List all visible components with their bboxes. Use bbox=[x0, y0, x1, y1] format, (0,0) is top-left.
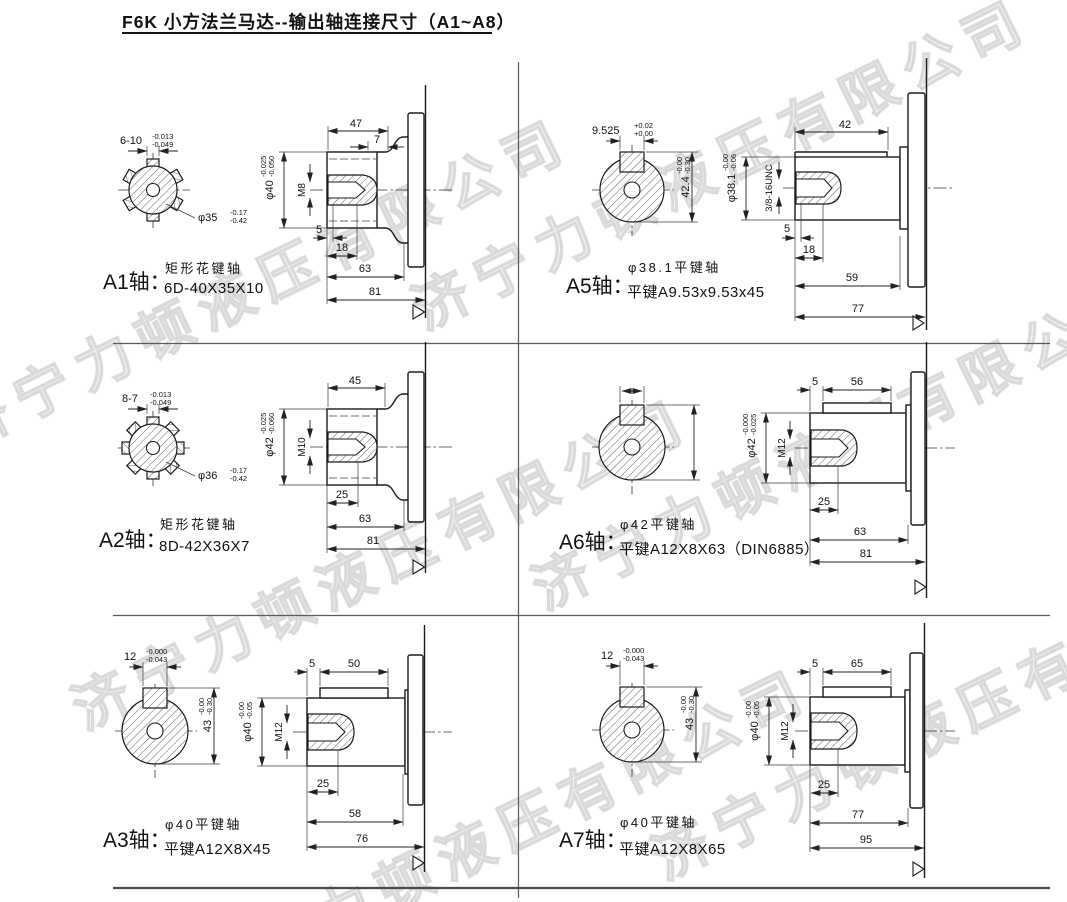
a6-end-view bbox=[592, 386, 700, 494]
a1-end-view: 6-10 -0.013 -0.049 φ35 -0.17 -0.42 bbox=[118, 132, 247, 228]
a2-spline-width-dim: 8-7 bbox=[122, 393, 138, 405]
a7-dim-95: 95 bbox=[860, 834, 872, 846]
svg-text:42.4: 42.4 bbox=[680, 176, 692, 197]
a2-shaft-dia-dim: φ42 -0.025 -0.060 bbox=[259, 413, 276, 457]
svg-text:43: 43 bbox=[202, 720, 214, 732]
svg-text:-0.05: -0.05 bbox=[752, 701, 761, 718]
a1-dim-18: 18 bbox=[336, 242, 348, 254]
svg-text:-0.050: -0.050 bbox=[267, 156, 276, 177]
a6-dim-25: 25 bbox=[818, 496, 830, 508]
a3-key-width-tol-l: -0.043 bbox=[146, 655, 167, 664]
a7-key-height-dim: 43 -0.00 -0.30 bbox=[679, 696, 696, 730]
svg-text:φ42: φ42 bbox=[746, 438, 758, 457]
a7-shaft-dia-dim: φ40 -0.00 -0.05 bbox=[744, 701, 761, 741]
a7-dim-65: 65 bbox=[851, 658, 863, 670]
a5-key-width-dim: 9.525 bbox=[592, 125, 620, 137]
a7-key-width-dim: 12 bbox=[601, 650, 613, 662]
a1-spline-width-dim: 6-10 bbox=[120, 135, 142, 147]
a5-dim-5: 5 bbox=[784, 223, 790, 235]
a7-shaft-desc1: φ40平键轴 bbox=[620, 812, 697, 831]
a2-shaft-desc2: 8D-42X36X7 bbox=[159, 538, 250, 555]
a3-thread-dim: M12 bbox=[274, 722, 285, 742]
a3-key-width-dim: 12 bbox=[124, 651, 136, 663]
a2-len45-dim: 45 bbox=[349, 375, 361, 387]
a1-len47-dim: 47 bbox=[350, 118, 362, 130]
a3-end-view: 12 -0.000 -0.043 43 -0.00 -0.30 bbox=[115, 647, 220, 778]
a1-shaft-label: A1轴： bbox=[103, 266, 171, 296]
svg-text:43: 43 bbox=[684, 718, 696, 730]
svg-text:M10: M10 bbox=[297, 437, 308, 457]
first-angle-projection-icon bbox=[413, 560, 425, 574]
a2-dim-81: 81 bbox=[367, 535, 379, 547]
a5-key-width-tol-l: +0.00 bbox=[634, 129, 653, 138]
svg-text:M12: M12 bbox=[777, 438, 788, 458]
svg-text:M8: M8 bbox=[297, 183, 308, 197]
a7-dim-25: 25 bbox=[818, 779, 830, 791]
a6-dim-56: 56 bbox=[851, 376, 863, 388]
a1-side-view: 47 7 φ40 -0.025 -0.050 M8 bbox=[259, 85, 452, 319]
a1-shaft-desc2: 6D-40X35X10 bbox=[164, 280, 264, 297]
a5-end-view: 9.525 +0.02 +0.00 42.4 -0.00 -0.30 bbox=[592, 121, 698, 236]
a5-shaft-dia-dim: φ38.1 -0.00 -0.06 bbox=[721, 154, 738, 202]
a3-dim-50: 50 bbox=[348, 658, 360, 670]
a5-shaft-label: A5轴： bbox=[566, 270, 634, 300]
a1-dim-63: 63 bbox=[359, 263, 371, 275]
a6-thread-dim: M12 bbox=[777, 438, 788, 458]
a6-shaft-desc2: 平键A12X8X63（DIN6885） bbox=[619, 538, 819, 559]
svg-text:M12: M12 bbox=[274, 722, 285, 742]
drawing-sheet: 济宁力顿液压有限公司 济宁力顿液压有限公司 济宁力顿液压有限公司 济宁力顿液压有… bbox=[0, 0, 1067, 902]
a7-shaft-label: A7轴： bbox=[559, 824, 627, 854]
a3-shaft-label: A3轴： bbox=[103, 824, 171, 854]
a1-dim-81: 81 bbox=[369, 286, 381, 298]
a6-dim-63: 63 bbox=[854, 526, 866, 538]
technical-drawing: 6-10 -0.013 -0.049 φ35 -0.17 -0.42 bbox=[0, 0, 1067, 902]
svg-text:-0.06: -0.06 bbox=[729, 154, 738, 171]
a1-len7-dim: 7 bbox=[374, 134, 380, 146]
a3-dim-58: 58 bbox=[349, 808, 361, 820]
svg-text:-0.30: -0.30 bbox=[683, 157, 692, 174]
a1-thread-dim: M8 bbox=[297, 183, 308, 197]
a7-dim-5: 5 bbox=[812, 658, 818, 670]
svg-text:-0.060: -0.060 bbox=[267, 413, 276, 434]
a5-dim-59: 59 bbox=[846, 272, 858, 284]
a1-spline-dia-tol-l: -0.42 bbox=[230, 216, 247, 225]
a5-dim-77: 77 bbox=[852, 303, 864, 315]
a6-side-view: 5 56 φ42 -0.000 -0.025 M12 bbox=[741, 342, 955, 598]
svg-text:φ42: φ42 bbox=[264, 437, 276, 456]
svg-text:-0.30: -0.30 bbox=[205, 698, 214, 715]
a1-dim-5: 5 bbox=[316, 224, 322, 236]
a1-shaft-desc1: 矩形花键轴 bbox=[165, 258, 243, 277]
svg-text:φ38.1: φ38.1 bbox=[726, 174, 738, 203]
a3-key-height-dim: 43 -0.00 -0.30 bbox=[197, 698, 214, 732]
a6-shaft-desc1: φ42平键轴 bbox=[620, 514, 697, 533]
a7-shaft-desc2: 平键A12X8X65 bbox=[619, 838, 726, 859]
a3-shaft-dia-dim: φ40 -0.00 -0.05 bbox=[237, 702, 254, 742]
a3-side-view: 5 50 φ40 -0.00 -0.05 M12 bbox=[237, 625, 452, 872]
a7-key bbox=[620, 687, 644, 707]
a5-dim-18: 18 bbox=[803, 244, 815, 256]
svg-text:φ40: φ40 bbox=[749, 721, 761, 740]
a7-end-view: 12 -0.000 -0.043 43 -0.00 -0.30 bbox=[592, 646, 702, 777]
a7-thread-dim: M12 bbox=[780, 721, 791, 741]
svg-text:-0.30: -0.30 bbox=[687, 696, 696, 713]
svg-text:3/8-16UNC: 3/8-16UNC bbox=[764, 164, 775, 212]
svg-text:φ40: φ40 bbox=[264, 180, 276, 199]
a5-thread-dim: 3/8-16UNC bbox=[764, 164, 775, 212]
a7-side-view: 5 65 φ40 -0.00 -0.05 M12 bbox=[744, 623, 955, 878]
a7-dim-77: 77 bbox=[852, 809, 864, 821]
a5-key-height-dim: 42.4 -0.00 -0.30 bbox=[675, 157, 692, 198]
svg-text:-0.05: -0.05 bbox=[245, 702, 254, 719]
a3-shaft-desc1: φ40平键轴 bbox=[165, 814, 242, 833]
a3-dim-5: 5 bbox=[309, 658, 315, 670]
a3-key bbox=[143, 688, 167, 708]
a6-dim-5: 5 bbox=[812, 376, 818, 388]
a2-end-view: 8-7 -0.013 -0.049 φ36 -0.17 -0.42 bbox=[118, 390, 247, 486]
a6-dim-81: 81 bbox=[860, 548, 872, 560]
svg-text:φ40: φ40 bbox=[242, 722, 254, 741]
a3-keyway bbox=[320, 688, 388, 698]
a6-keyway bbox=[823, 403, 891, 413]
a2-side-view: 45 φ42 -0.025 -0.060 M10 25 bbox=[259, 342, 452, 574]
a2-spline-width-tol-l: -0.049 bbox=[150, 398, 171, 407]
a1-spline-dia-dim: φ35 bbox=[198, 212, 217, 224]
a3-dim-25: 25 bbox=[317, 778, 329, 790]
first-angle-projection-icon bbox=[413, 856, 424, 870]
svg-text:M12: M12 bbox=[780, 721, 791, 741]
first-angle-projection-icon bbox=[913, 316, 924, 330]
a5-len42-dim: 42 bbox=[839, 119, 851, 131]
first-angle-projection-icon bbox=[915, 580, 926, 594]
a2-shaft-label: A2轴： bbox=[99, 524, 167, 554]
a5-shaft-desc1: φ38.1平键轴 bbox=[628, 257, 721, 276]
a1-spline-width-tol-l: -0.049 bbox=[152, 140, 173, 149]
svg-text:-0.025: -0.025 bbox=[749, 414, 758, 435]
a3-dim-76: 76 bbox=[356, 833, 368, 845]
a6-panel: 5 56 φ42 -0.000 -0.025 M12 bbox=[592, 342, 955, 598]
a7-keyway bbox=[823, 687, 891, 697]
a2-spline-dia-tol-l: -0.42 bbox=[230, 474, 247, 483]
a1-shaft-dia-dim: φ40 -0.025 -0.050 bbox=[259, 156, 276, 200]
a2-spline-dia-dim: φ36 bbox=[198, 470, 217, 482]
first-angle-projection-icon bbox=[913, 862, 924, 876]
a2-thread-dim: M10 bbox=[297, 437, 308, 457]
a2-shaft-desc1: 矩形花键轴 bbox=[160, 514, 238, 533]
a5-key bbox=[620, 152, 644, 172]
a7-key-width-tol-l: -0.043 bbox=[623, 654, 644, 663]
a6-shaft-dia-dim: φ42 -0.000 -0.025 bbox=[741, 414, 758, 458]
a2-dim-63: 63 bbox=[359, 513, 371, 525]
a6-key bbox=[620, 405, 644, 425]
first-angle-projection-icon bbox=[413, 305, 425, 319]
a2-dim-25: 25 bbox=[336, 489, 348, 501]
a3-shaft-desc2: 平键A12X8X45 bbox=[164, 838, 271, 859]
a6-shaft-label: A6轴： bbox=[559, 526, 627, 556]
a5-shaft-desc2: 平键A9.53x9.53x45 bbox=[627, 281, 765, 302]
